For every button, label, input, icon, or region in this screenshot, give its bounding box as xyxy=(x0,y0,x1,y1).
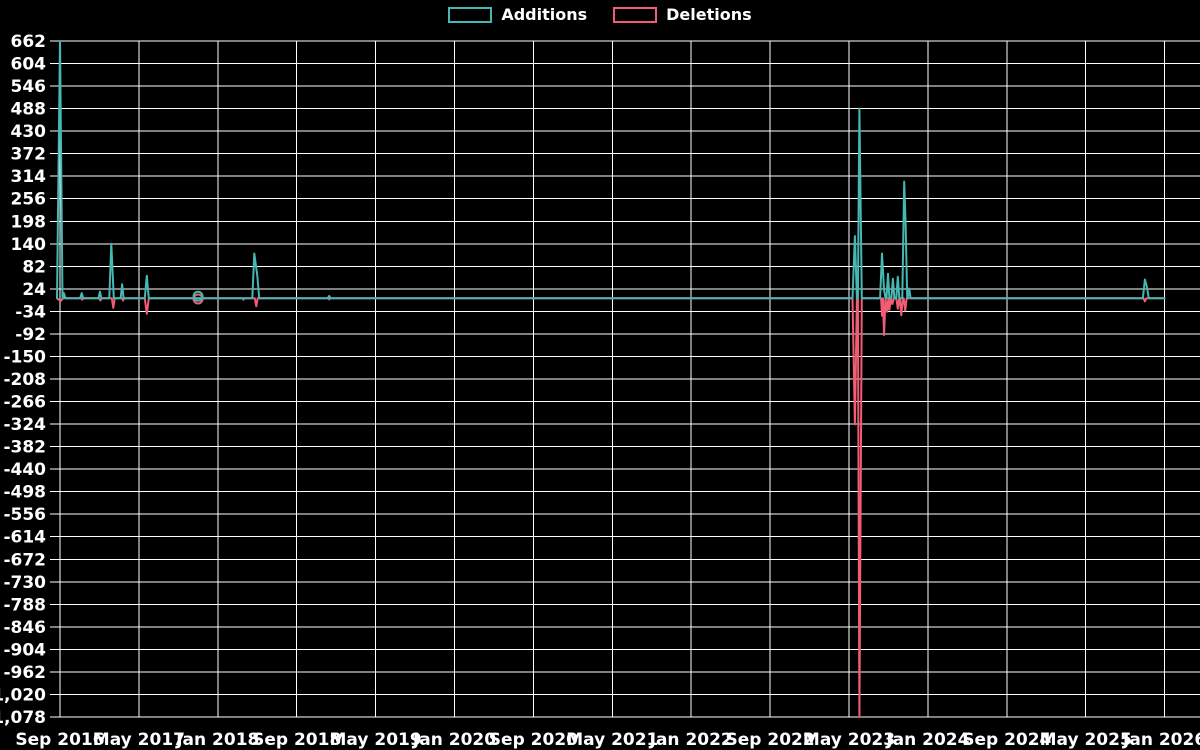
x-tick-label: Sep 2022 xyxy=(726,730,815,750)
y-tick-label: 314 xyxy=(11,167,47,187)
x-tick-label: Sep 2024 xyxy=(962,730,1051,750)
x-tick-label: Sep 2016 xyxy=(15,730,104,750)
y-tick-label: 140 xyxy=(11,235,47,255)
x-tick-label: Jan 2026 xyxy=(1122,730,1200,750)
x-tick-label: Jan 2020 xyxy=(412,730,496,750)
deletions-legend-label: Deletions xyxy=(666,7,752,23)
y-tick-label: -846 xyxy=(3,618,46,638)
deletions-line xyxy=(57,298,1165,717)
y-tick-label: -498 xyxy=(3,483,46,503)
y-tick-label: -440 xyxy=(3,460,46,480)
y-tick-label: -614 xyxy=(3,528,46,548)
additions-line xyxy=(57,41,1165,298)
y-tick-label: 82 xyxy=(22,257,46,277)
x-tick-label: May 2021 xyxy=(566,730,658,750)
y-tick-label: 256 xyxy=(11,190,47,210)
y-tick-label: 198 xyxy=(11,212,47,232)
x-tick-label: Jan 2022 xyxy=(649,730,733,750)
x-tick-label: May 2019 xyxy=(330,730,422,750)
y-tick-label: 662 xyxy=(11,32,47,52)
x-tick-label: Jan 2024 xyxy=(885,730,969,750)
y-tick-label: 430 xyxy=(11,122,47,142)
y-tick-label: 604 xyxy=(11,55,47,75)
legend-item-deletions: Deletions xyxy=(613,7,752,23)
y-tick-label: -672 xyxy=(3,550,46,570)
y-axis-labels: 6626045464884303723142561981408224-34-92… xyxy=(0,32,46,728)
code-frequency-chart: Additions Deletions 66260454648843037231… xyxy=(0,0,1200,750)
y-tick-label: 488 xyxy=(11,100,47,120)
x-axis-labels: Sep 2016May 2017Jan 2018Sep 2018May 2019… xyxy=(15,730,1200,750)
x-tick-label: May 2017 xyxy=(93,730,185,750)
y-tick-label: -208 xyxy=(3,370,46,390)
y-tick-label: 546 xyxy=(11,77,47,97)
chart-legend: Additions Deletions xyxy=(0,7,1200,23)
y-tick-label: -962 xyxy=(3,663,46,683)
y-tick-label: -92 xyxy=(15,325,46,345)
y-tick-label: -324 xyxy=(3,415,46,435)
legend-item-additions: Additions xyxy=(448,7,587,23)
additions-legend-label: Additions xyxy=(501,7,587,23)
x-tick-label: May 2023 xyxy=(803,730,895,750)
x-tick-label: Sep 2020 xyxy=(489,730,578,750)
plot-area: 6626045464884303723142561981408224-34-92… xyxy=(0,0,1200,750)
y-tick-label: 24 xyxy=(22,280,46,300)
deletions-swatch-icon xyxy=(613,7,657,23)
y-tick-label: -904 xyxy=(3,640,46,660)
y-tick-label: 372 xyxy=(11,145,47,165)
y-tick-label: -556 xyxy=(3,505,46,525)
y-tick-label: -1,078 xyxy=(0,708,46,728)
y-tick-label: -382 xyxy=(3,438,46,458)
y-tick-label: -266 xyxy=(3,393,46,413)
y-tick-label: -788 xyxy=(3,595,46,615)
x-tick-label: Sep 2018 xyxy=(252,730,341,750)
y-tick-label: -730 xyxy=(3,573,46,593)
y-tick-label: -34 xyxy=(15,302,46,322)
additions-swatch-icon xyxy=(448,7,492,23)
y-tick-label: -1,020 xyxy=(0,685,46,705)
x-tick-label: May 2025 xyxy=(1040,730,1132,750)
grid-lines xyxy=(50,41,1200,717)
y-tick-label: -150 xyxy=(3,347,46,367)
x-tick-label: Jan 2018 xyxy=(175,730,259,750)
